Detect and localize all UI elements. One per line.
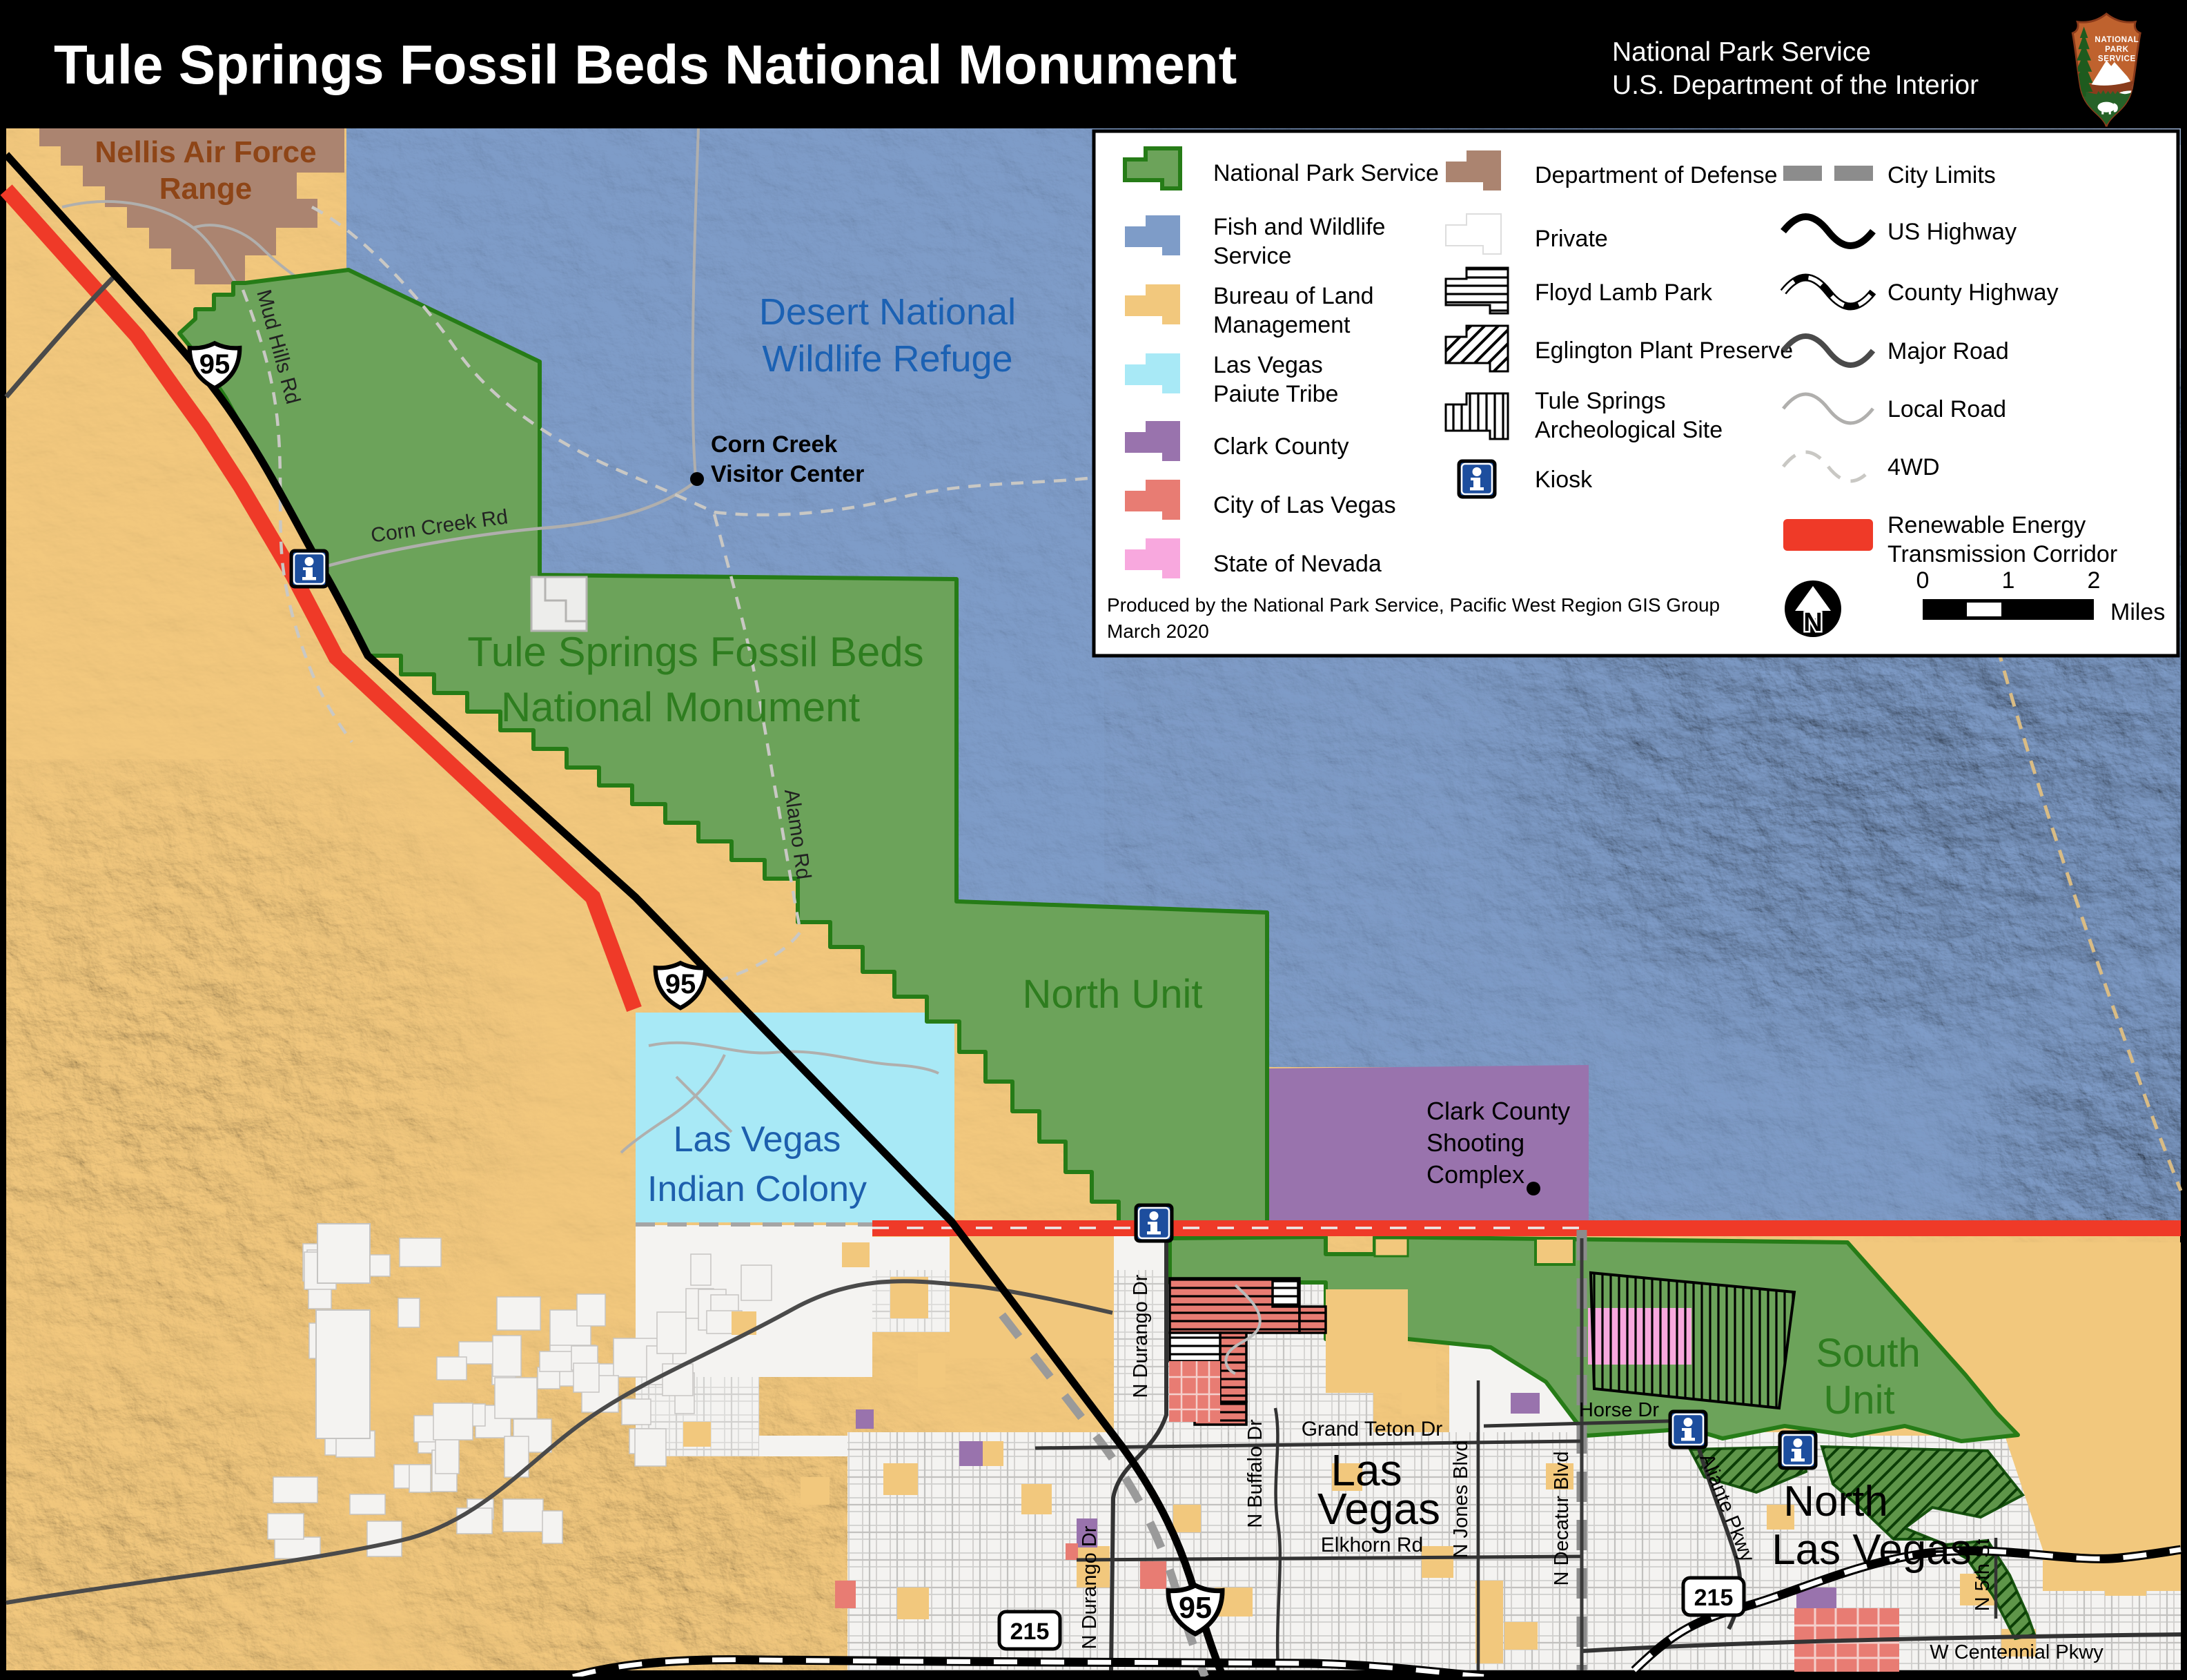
svg-text:Paiute Tribe: Paiute Tribe xyxy=(1213,381,1338,407)
svg-text:Grand Teton Dr: Grand Teton Dr xyxy=(1302,1418,1443,1440)
svg-text:Shooting: Shooting xyxy=(1426,1129,1524,1157)
svg-text:95: 95 xyxy=(1179,1592,1212,1625)
svg-text:Management: Management xyxy=(1213,312,1351,338)
svg-text:South: South xyxy=(1816,1331,1921,1376)
svg-text:Elkhorn Rd: Elkhorn Rd xyxy=(1321,1534,1423,1556)
svg-text:National Monument: National Monument xyxy=(501,684,861,730)
svg-text:Fish and Wildlife: Fish and Wildlife xyxy=(1213,214,1385,240)
svg-text:U.S. Department of the Interio: U.S. Department of the Interior xyxy=(1612,70,1979,100)
svg-text:City of Las Vegas: City of Las Vegas xyxy=(1213,492,1396,518)
svg-text:Major Road: Major Road xyxy=(1887,338,2009,364)
svg-text:N 5th St: N 5th St xyxy=(1972,1539,1994,1612)
svg-text:Produced by the National Park: Produced by the National Park Service, P… xyxy=(1107,594,1720,616)
svg-text:N Decatur Blvd: N Decatur Blvd xyxy=(1551,1451,1573,1585)
svg-text:95: 95 xyxy=(665,969,696,999)
svg-text:SERVICE: SERVICE xyxy=(2098,55,2136,64)
svg-text:Clark County: Clark County xyxy=(1426,1097,1570,1125)
svg-text:Transmission Corridor: Transmission Corridor xyxy=(1887,541,2117,567)
svg-text:Las Vegas: Las Vegas xyxy=(1772,1526,1972,1574)
svg-text:National Park Service: National Park Service xyxy=(1213,160,1439,186)
svg-text:Desert National: Desert National xyxy=(759,291,1016,333)
svg-text:March 2020: March 2020 xyxy=(1107,621,1209,642)
svg-text:N: N xyxy=(1803,608,1822,637)
svg-text:PARK: PARK xyxy=(2105,45,2128,54)
svg-text:Horse Dr: Horse Dr xyxy=(1579,1399,1659,1421)
svg-text:Tule Springs Fossil Beds Natio: Tule Springs Fossil Beds National Monume… xyxy=(54,34,1237,95)
svg-text:N Buffalo Dr: N Buffalo Dr xyxy=(1244,1419,1266,1528)
svg-text:95: 95 xyxy=(199,349,231,380)
svg-text:North Unit: North Unit xyxy=(1022,972,1202,1017)
svg-text:Complex: Complex xyxy=(1426,1160,1524,1189)
svg-text:Renewable Energy: Renewable Energy xyxy=(1887,512,2086,538)
svg-text:US Highway: US Highway xyxy=(1887,219,2017,245)
svg-text:215: 215 xyxy=(1694,1585,1734,1611)
svg-text:Indian Colony: Indian Colony xyxy=(647,1169,867,1209)
svg-text:Clark County: Clark County xyxy=(1213,433,1349,460)
svg-text:Wildlife Refuge: Wildlife Refuge xyxy=(762,338,1012,380)
svg-text:0: 0 xyxy=(1916,567,1930,594)
svg-text:Floyd Lamb Park: Floyd Lamb Park xyxy=(1535,280,1713,306)
svg-text:Local Road: Local Road xyxy=(1887,396,2006,422)
svg-text:N Durango Dr: N Durango Dr xyxy=(1079,1525,1101,1649)
svg-text:National Park Service: National Park Service xyxy=(1612,37,1871,67)
svg-text:Private: Private xyxy=(1535,226,1608,252)
svg-text:Vegas: Vegas xyxy=(1317,1484,1440,1534)
svg-text:Eglington Plant Preserve: Eglington Plant Preserve xyxy=(1535,338,1793,364)
svg-text:215: 215 xyxy=(1010,1619,1050,1645)
svg-text:N Jones Blvd: N Jones Blvd xyxy=(1450,1440,1472,1559)
svg-text:Corn Creek: Corn Creek xyxy=(711,431,837,458)
svg-text:1: 1 xyxy=(2002,567,2015,594)
svg-text:4WD: 4WD xyxy=(1887,454,1940,480)
svg-text:Archeological Site: Archeological Site xyxy=(1535,417,1723,443)
svg-text:Bureau of Land: Bureau of Land xyxy=(1213,283,1374,309)
svg-text:County Highway: County Highway xyxy=(1887,280,2059,306)
svg-text:Nellis Air Force: Nellis Air Force xyxy=(95,135,316,169)
svg-text:Tule Springs Fossil Beds: Tule Springs Fossil Beds xyxy=(467,629,923,675)
svg-text:Las Vegas: Las Vegas xyxy=(674,1120,841,1160)
svg-text:NATIONAL: NATIONAL xyxy=(2095,35,2139,44)
svg-text:2: 2 xyxy=(2088,567,2101,594)
svg-text:Department of Defense: Department of Defense xyxy=(1535,162,1778,188)
svg-text:Las Vegas: Las Vegas xyxy=(1213,352,1323,378)
svg-text:Tule Springs: Tule Springs xyxy=(1535,388,1666,414)
svg-text:State of Nevada: State of Nevada xyxy=(1213,551,1382,577)
svg-text:Kiosk: Kiosk xyxy=(1535,467,1593,493)
svg-text:Range: Range xyxy=(159,172,252,206)
svg-text:North: North xyxy=(1783,1478,1888,1525)
svg-text:W Centennial Pkwy: W Centennial Pkwy xyxy=(1930,1641,2103,1663)
svg-text:Unit: Unit xyxy=(1823,1378,1894,1423)
svg-text:City Limits: City Limits xyxy=(1887,162,1996,188)
svg-text:Visitor Center: Visitor Center xyxy=(711,461,864,487)
svg-text:Miles: Miles xyxy=(2110,599,2165,625)
svg-text:N Durango Dr: N Durango Dr xyxy=(1130,1274,1152,1398)
svg-text:Service: Service xyxy=(1213,243,1291,269)
